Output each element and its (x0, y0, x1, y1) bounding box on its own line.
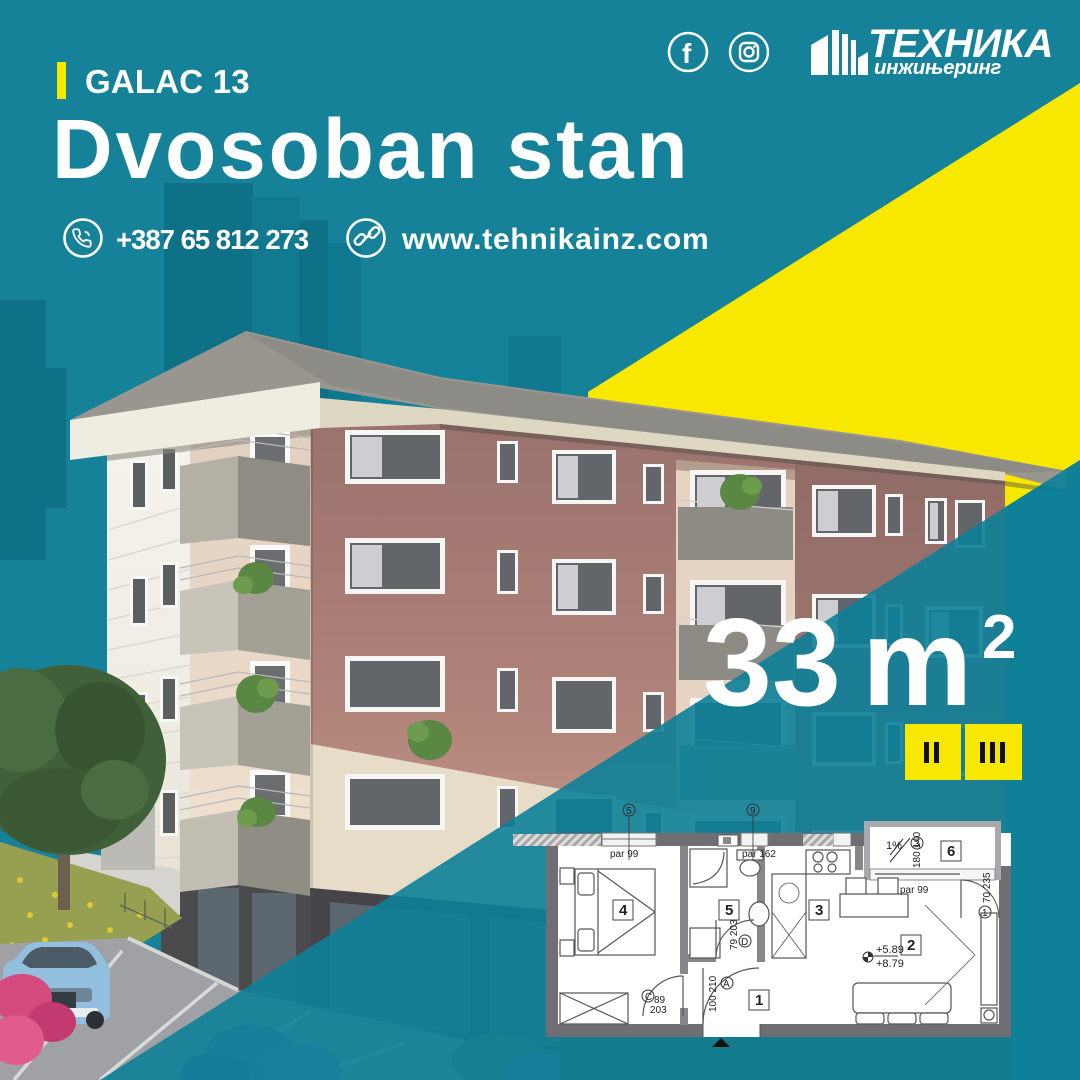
svg-text:+387 65 812 273: +387 65 812 273 (116, 224, 309, 255)
svg-text:5: 5 (626, 806, 632, 817)
svg-text:9: 9 (750, 806, 756, 817)
svg-text:4: 4 (619, 902, 628, 919)
svg-text:www.tehnikainz.com: www.tehnikainz.com (401, 223, 709, 256)
svg-text:D: D (741, 937, 748, 948)
svg-text:m: m (862, 594, 972, 732)
svg-text:6: 6 (947, 843, 955, 860)
svg-text:+8.79: +8.79 (876, 958, 904, 970)
svg-text:70 235: 70 235 (982, 872, 993, 903)
svg-text:Dvosoban stan: Dvosoban stan (52, 102, 691, 196)
svg-text:100 210: 100 210 (708, 975, 719, 1012)
svg-text:5: 5 (725, 902, 733, 919)
svg-text:2: 2 (982, 603, 1016, 672)
svg-text:79 203: 79 203 (729, 919, 740, 950)
svg-text:2: 2 (907, 937, 915, 954)
svg-text:GALAC 13: GALAC 13 (85, 63, 250, 100)
svg-text:1: 1 (982, 908, 988, 919)
svg-text:1: 1 (755, 992, 763, 1009)
svg-text:3: 3 (815, 902, 823, 919)
svg-text:3: 3 (914, 839, 920, 850)
svg-text:203: 203 (650, 1005, 667, 1016)
svg-text:C: C (645, 992, 652, 1003)
svg-text:par 99: par 99 (610, 849, 639, 860)
svg-text:par 99: par 99 (900, 885, 929, 896)
svg-text:par 162: par 162 (742, 849, 776, 860)
svg-text:f: f (682, 38, 692, 69)
svg-text:33: 33 (703, 594, 841, 732)
svg-text:A: A (723, 979, 730, 990)
svg-text:инжињеринг: инжињеринг (874, 56, 1001, 79)
svg-text:+5.89: +5.89 (876, 944, 904, 956)
